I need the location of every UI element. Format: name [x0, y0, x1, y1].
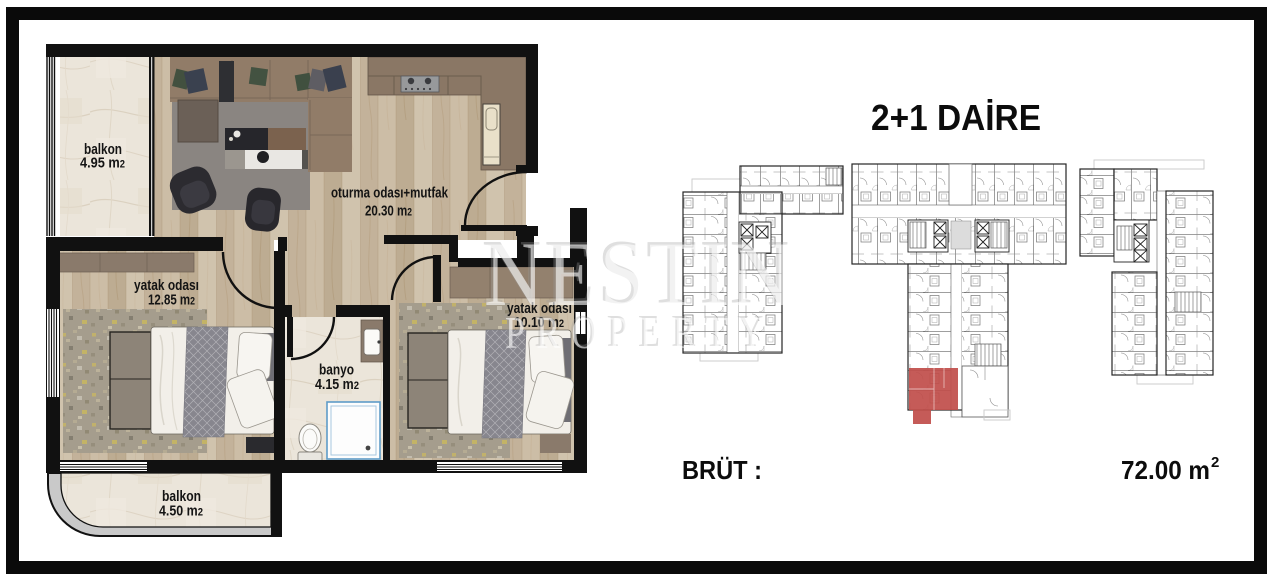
svg-text:72.00 m: 72.00 m	[1121, 455, 1210, 485]
svg-text:2+1 DAİRE: 2+1 DAİRE	[871, 97, 1041, 138]
svg-text:BRÜT :: BRÜT :	[682, 455, 762, 485]
svg-text:PROPERTY: PROPERTY	[505, 308, 776, 358]
svg-text:oturma odası+mutfak: oturma odası+mutfak	[331, 185, 448, 202]
svg-text:4.15 m2: 4.15 m2	[315, 377, 359, 393]
svg-text:4.50 m2: 4.50 m2	[159, 504, 203, 520]
svg-text:2: 2	[1211, 454, 1219, 471]
svg-text:20.30 m2: 20.30 m2	[365, 203, 412, 220]
svg-text:4.95 m2: 4.95 m2	[80, 155, 125, 172]
svg-text:12.85 m2: 12.85 m2	[148, 293, 195, 309]
